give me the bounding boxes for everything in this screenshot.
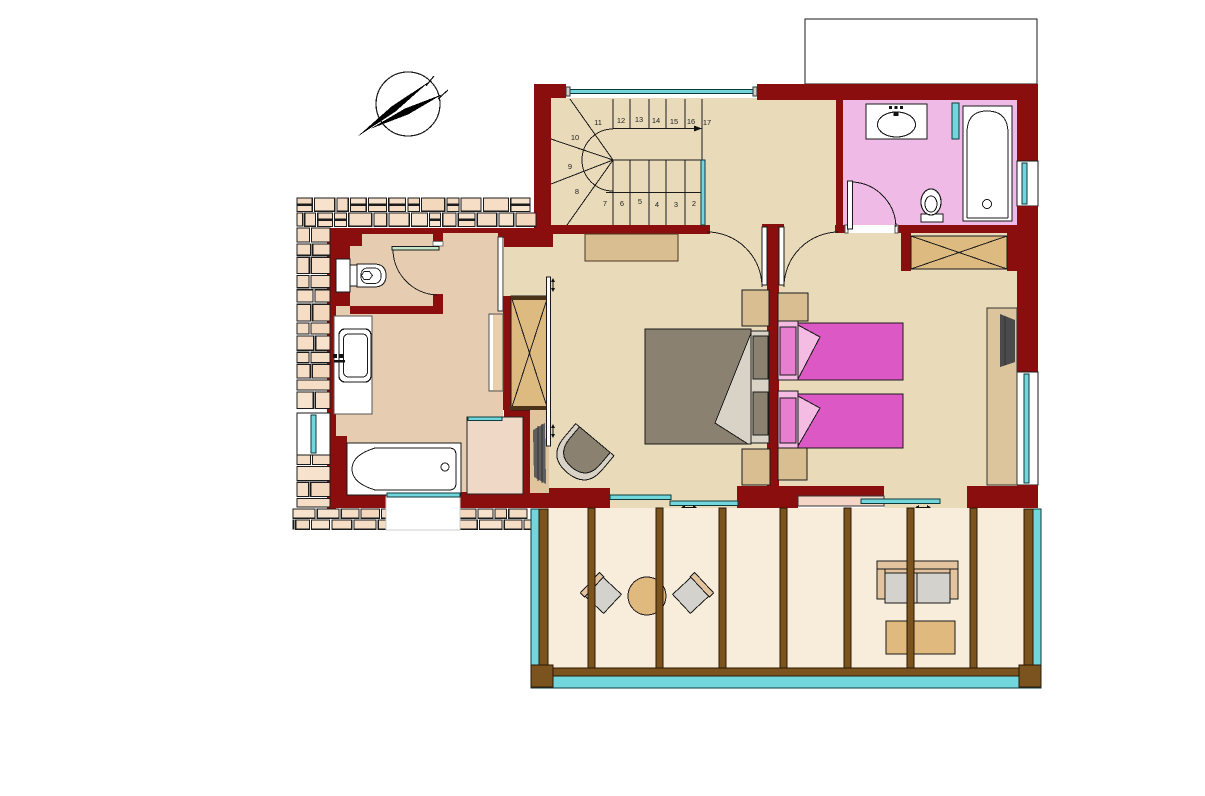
svg-text:6: 6 bbox=[620, 199, 624, 208]
svg-text:5: 5 bbox=[638, 197, 642, 206]
svg-text:11: 11 bbox=[594, 118, 602, 127]
svg-text:17: 17 bbox=[703, 118, 711, 127]
svg-text:15: 15 bbox=[670, 117, 678, 126]
svg-text:14: 14 bbox=[652, 116, 660, 125]
svg-text:8: 8 bbox=[575, 187, 579, 196]
svg-text:12: 12 bbox=[617, 116, 625, 125]
svg-text:9: 9 bbox=[568, 162, 572, 171]
svg-text:3: 3 bbox=[674, 200, 678, 209]
svg-text:4: 4 bbox=[655, 200, 659, 209]
svg-text:16: 16 bbox=[687, 117, 695, 126]
svg-text:13: 13 bbox=[635, 115, 643, 124]
svg-text:10: 10 bbox=[571, 133, 579, 142]
svg-text:7: 7 bbox=[603, 199, 607, 208]
svg-text:2: 2 bbox=[692, 199, 696, 208]
